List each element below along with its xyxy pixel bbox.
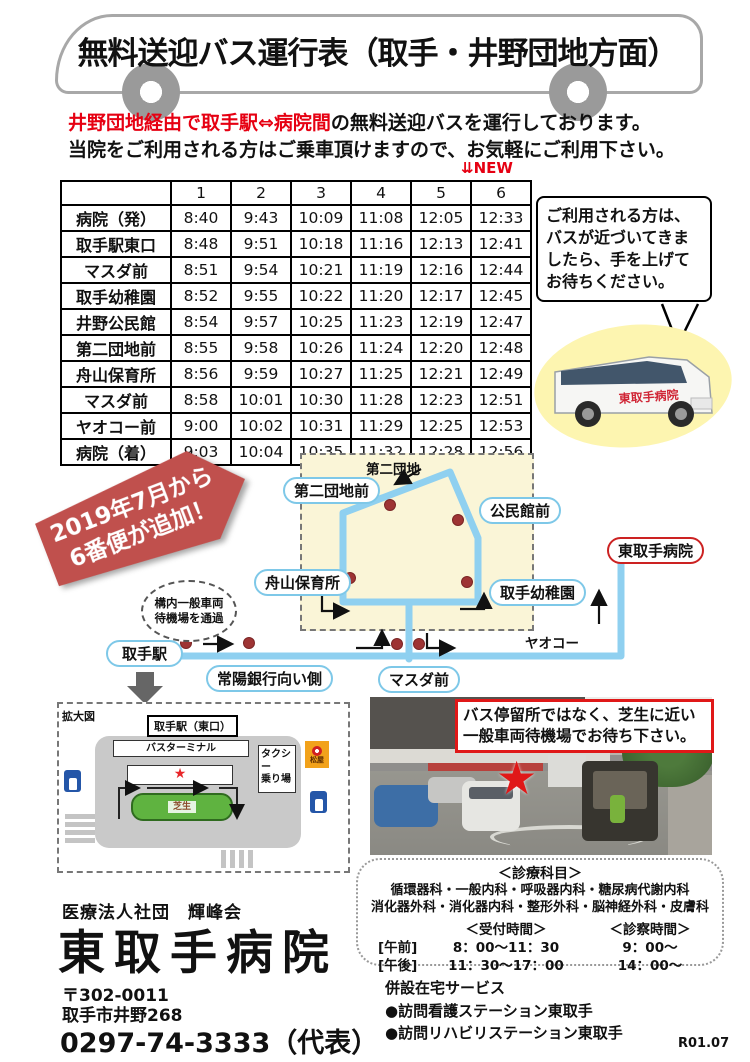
- van-bumper: [691, 398, 712, 409]
- time-cell: 10:09: [291, 205, 351, 231]
- time-cell: 8:55: [171, 335, 231, 361]
- reception-hours-pm: 11：30～17：00: [422, 957, 590, 975]
- intro-line1: 井野団地経由で取手駅⇔病院間の無料送迎バスを運行しております。: [68, 110, 675, 137]
- stop-name-cell: 井野公民館: [61, 309, 171, 335]
- stop-name-cell: マスダ前: [61, 257, 171, 283]
- home-services: 併設在宅サービス ●訪問看護ステーション東取手●訪問リハビリステーション東取手: [385, 977, 623, 1045]
- hours-table: ＜受付時間＞ ＜診察時間＞ [午前] 8：00～11：30 9：00～ [午後]…: [366, 921, 714, 976]
- time-cell: 11:24: [351, 335, 411, 361]
- departments-line2: 消化器外科・消化器内科・整形外科・脳神経外科・皮膚科: [366, 900, 714, 917]
- time-cell: 12:17: [411, 283, 471, 309]
- map-label-toride-yochien: 取手幼稚園: [489, 579, 586, 606]
- time-cell: 12:48: [471, 335, 531, 361]
- time-cell: 12:23: [411, 387, 471, 413]
- photo-person: [610, 795, 625, 823]
- home-service-item: ●訪問リハビリステーション東取手: [385, 1022, 623, 1045]
- time-cell: 9:57: [231, 309, 291, 335]
- wait-note-line2: 待機場を通過: [155, 611, 224, 626]
- timetable-row: 病院（発）8:409:4310:0911:0812:0512:33: [61, 205, 531, 231]
- matsuya-sign: 松屋: [305, 741, 329, 768]
- intro-line1-highlight: 井野団地経由で取手駅⇔病院間: [68, 112, 331, 134]
- matsuya-logo-icon: [312, 746, 322, 756]
- station-east-exit-label: 取手駅（東口）: [147, 715, 238, 737]
- timetable-body: 病院（発）8:409:4310:0911:0812:0512:33取手駅東口8:…: [61, 205, 531, 465]
- time-cell: 9:51: [231, 231, 291, 257]
- time-cell: 10:30: [291, 387, 351, 413]
- map-label-funayama-hoikusho: 舟山保育所: [254, 569, 351, 596]
- convenience-store-icon: [64, 770, 81, 792]
- time-cell: 10:25: [291, 309, 351, 335]
- hospital-name: 東取手病院: [58, 914, 338, 983]
- time-cell: 12:05: [411, 205, 471, 231]
- departments-title: ＜診療科目＞: [366, 863, 714, 883]
- timetable-row: 舟山保育所8:569:5910:2711:2512:2112:49: [61, 361, 531, 387]
- time-cell: 11:20: [351, 283, 411, 309]
- time-cell: 12:41: [471, 231, 531, 257]
- timetable-column-header: 4: [351, 181, 411, 205]
- timetable-column-header: 3: [291, 181, 351, 205]
- home-services-title: 併設在宅サービス: [385, 977, 623, 1000]
- time-cell: 8:54: [171, 309, 231, 335]
- timetable-column-header: 1: [171, 181, 231, 205]
- flyer-page: 無料送迎バス運行表（取手・井野団地方面） 井野団地経由で取手駅⇔病院間の無料送迎…: [0, 0, 750, 1062]
- time-cell: 10:27: [291, 361, 351, 387]
- timetable-row: 井野公民館8:549:5710:2511:2312:1912:47: [61, 309, 531, 335]
- intro-line1-rest: の無料送迎バスを運行しております。: [331, 112, 651, 134]
- station-zoom-diagram: 拡大図 取手駅（東口） バスターミナル ★ 芝生 タクシー 乗り場 松屋: [57, 702, 350, 873]
- timetable-row: 第二団地前8:559:5810:2611:2412:2012:48: [61, 335, 531, 361]
- time-cell: 8:48: [171, 231, 231, 257]
- map-label-masuda-mae: マスダ前: [378, 666, 460, 693]
- timetable-row: 取手幼稚園8:529:5510:2211:2012:1712:45: [61, 283, 531, 309]
- time-cell: 12:25: [411, 413, 471, 439]
- photo-star-marker: ★: [496, 755, 537, 801]
- timetable-row: ヤオコー前9:0010:0210:3111:2912:2512:53: [61, 413, 531, 439]
- time-cell: 8:40: [171, 205, 231, 231]
- page-title: 無料送迎バス運行表（取手・井野団地方面）: [70, 28, 685, 73]
- home-services-list: ●訪問看護ステーション東取手●訪問リハビリステーション東取手: [385, 1000, 623, 1045]
- stop-name-cell: 取手駅東口: [61, 231, 171, 257]
- clinic-info-box: ＜診療科目＞ 循環器科・一般内科・呼吸器内科・糖尿病代謝内科 消化器外科・消化器…: [356, 858, 724, 966]
- time-cell: 10:21: [291, 257, 351, 283]
- time-cell: 8:52: [171, 283, 231, 309]
- crosswalk-bottom: [221, 850, 253, 868]
- time-cell: 11:29: [351, 413, 411, 439]
- stop-name-cell: 舟山保育所: [61, 361, 171, 387]
- time-cell: 10:26: [291, 335, 351, 361]
- photo-note-line1: バス停留所ではなく、芝生に近い: [463, 705, 706, 726]
- wait-area-note: 構内一般車両 待機場を通過: [141, 580, 237, 642]
- intro-text: 井野団地経由で取手駅⇔病院間の無料送迎バスを運行しております。 当院をご利用され…: [68, 110, 675, 164]
- time-cell: 11:16: [351, 231, 411, 257]
- timetable-column-header: 6: [471, 181, 531, 205]
- time-cell: 12:44: [471, 257, 531, 283]
- intro-line2: 当院をご利用される方はご乗車頂けますので、お気軽にご利用下さい。: [68, 137, 675, 164]
- stop-name-cell: 病院（発）: [61, 205, 171, 231]
- shuttle-van-photo: 東取手病院: [533, 310, 735, 452]
- bus-terminal-label: バスターミナル: [113, 740, 249, 757]
- time-cell: 11:08: [351, 205, 411, 231]
- stop-name-cell: ヤオコー前: [61, 413, 171, 439]
- terminal-flow-arrows: [111, 764, 306, 824]
- map-label-yaoko: ヤオコー: [525, 632, 579, 652]
- map-label-daini-danchi-mae: 第二団地前: [283, 477, 380, 504]
- timetable-row: 取手駅東口8:489:5110:1811:1612:1312:41: [61, 231, 531, 257]
- hours-row-label: [午前]: [366, 939, 422, 957]
- photo-note-line2: 一般車両待機場でお待ち下さい。: [463, 726, 706, 747]
- time-cell: 11:19: [351, 257, 411, 283]
- exam-hours-pm: 14：00～: [590, 957, 710, 975]
- timetable-head: 123456: [61, 181, 531, 205]
- time-cell: 10:31: [291, 413, 351, 439]
- timetable-row: マスダ前8:519:5410:2111:1912:1612:44: [61, 257, 531, 283]
- reception-hours-title: ＜受付時間＞: [422, 921, 590, 939]
- time-cell: 12:51: [471, 387, 531, 413]
- time-cell: 12:33: [471, 205, 531, 231]
- time-cell: 10:01: [231, 387, 291, 413]
- new-service-marker: ⇊NEW: [461, 159, 513, 177]
- time-cell: 9:58: [231, 335, 291, 361]
- photo-truck: [548, 755, 586, 787]
- time-cell: 12:21: [411, 361, 471, 387]
- time-cell: 12:19: [411, 309, 471, 335]
- time-cell: 10:18: [291, 231, 351, 257]
- time-cell: 8:58: [171, 387, 231, 413]
- timetable-corner-cell: [61, 181, 171, 205]
- time-cell: 12:16: [411, 257, 471, 283]
- crosswalk-left: [65, 814, 95, 843]
- hospital-phone: 0297-74-3333（代表）: [60, 1021, 378, 1060]
- time-cell: 10:02: [231, 413, 291, 439]
- map-label-joyo-bank: 常陽銀行向い側: [206, 665, 333, 692]
- map-label-toride-station: 取手駅: [106, 640, 183, 667]
- timetable: 123456 病院（発）8:409:4310:0911:0812:0512:33…: [60, 180, 532, 466]
- departments-line1: 循環器科・一般内科・呼吸器内科・糖尿病代謝内科: [366, 883, 714, 900]
- time-cell: 12:20: [411, 335, 471, 361]
- time-cell: 12:13: [411, 231, 471, 257]
- time-cell: 9:54: [231, 257, 291, 283]
- wait-note-line1: 構内一般車両: [155, 596, 224, 611]
- zoom-diagram-label: 拡大図: [62, 708, 95, 724]
- version-label: R01.07: [678, 1036, 729, 1051]
- timetable-column-header: 5: [411, 181, 471, 205]
- time-cell: 12:45: [471, 283, 531, 309]
- matsuya-label: 松屋: [310, 757, 324, 764]
- time-cell: 11:28: [351, 387, 411, 413]
- time-cell: 12:49: [471, 361, 531, 387]
- time-cell: 11:25: [351, 361, 411, 387]
- map-label-hospital: 東取手病院: [607, 537, 704, 564]
- time-cell: 10:22: [291, 283, 351, 309]
- stop-name-cell: マスダ前: [61, 387, 171, 413]
- time-cell: 9:59: [231, 361, 291, 387]
- time-cell: 10:04: [231, 439, 291, 465]
- map-label-kominkan-mae: 公民館前: [479, 497, 561, 524]
- convenience-store-icon: [310, 791, 327, 813]
- hours-row-label: [午後]: [366, 957, 422, 975]
- exam-hours-title: ＜診察時間＞: [590, 921, 710, 939]
- timetable-column-header: 2: [231, 181, 291, 205]
- time-cell: 9:43: [231, 205, 291, 231]
- exam-hours-am: 9：00～: [590, 939, 710, 957]
- photo-warning-note: バス停留所ではなく、芝生に近い 一般車両待機場でお待ち下さい。: [455, 699, 714, 753]
- hail-note-bubble: ご利用される方は、バスが近づいてきましたら、手を上げてお待ちください。: [536, 196, 712, 302]
- time-cell: 8:51: [171, 257, 231, 283]
- stop-name-cell: 取手幼稚園: [61, 283, 171, 309]
- home-service-item: ●訪問看護ステーション東取手: [385, 1000, 623, 1023]
- map-label-daini-danchi: 第二団地: [366, 458, 420, 478]
- time-cell: 8:56: [171, 361, 231, 387]
- time-cell: 12:53: [471, 413, 531, 439]
- stop-name-cell: 第二団地前: [61, 335, 171, 361]
- time-cell: 12:47: [471, 309, 531, 335]
- reception-hours-am: 8：00～11：30: [422, 939, 590, 957]
- timetable-row: マスダ前8:5810:0110:3011:2812:2312:51: [61, 387, 531, 413]
- time-cell: 11:23: [351, 309, 411, 335]
- down-block-arrow: [127, 672, 163, 704]
- time-cell: 9:55: [231, 283, 291, 309]
